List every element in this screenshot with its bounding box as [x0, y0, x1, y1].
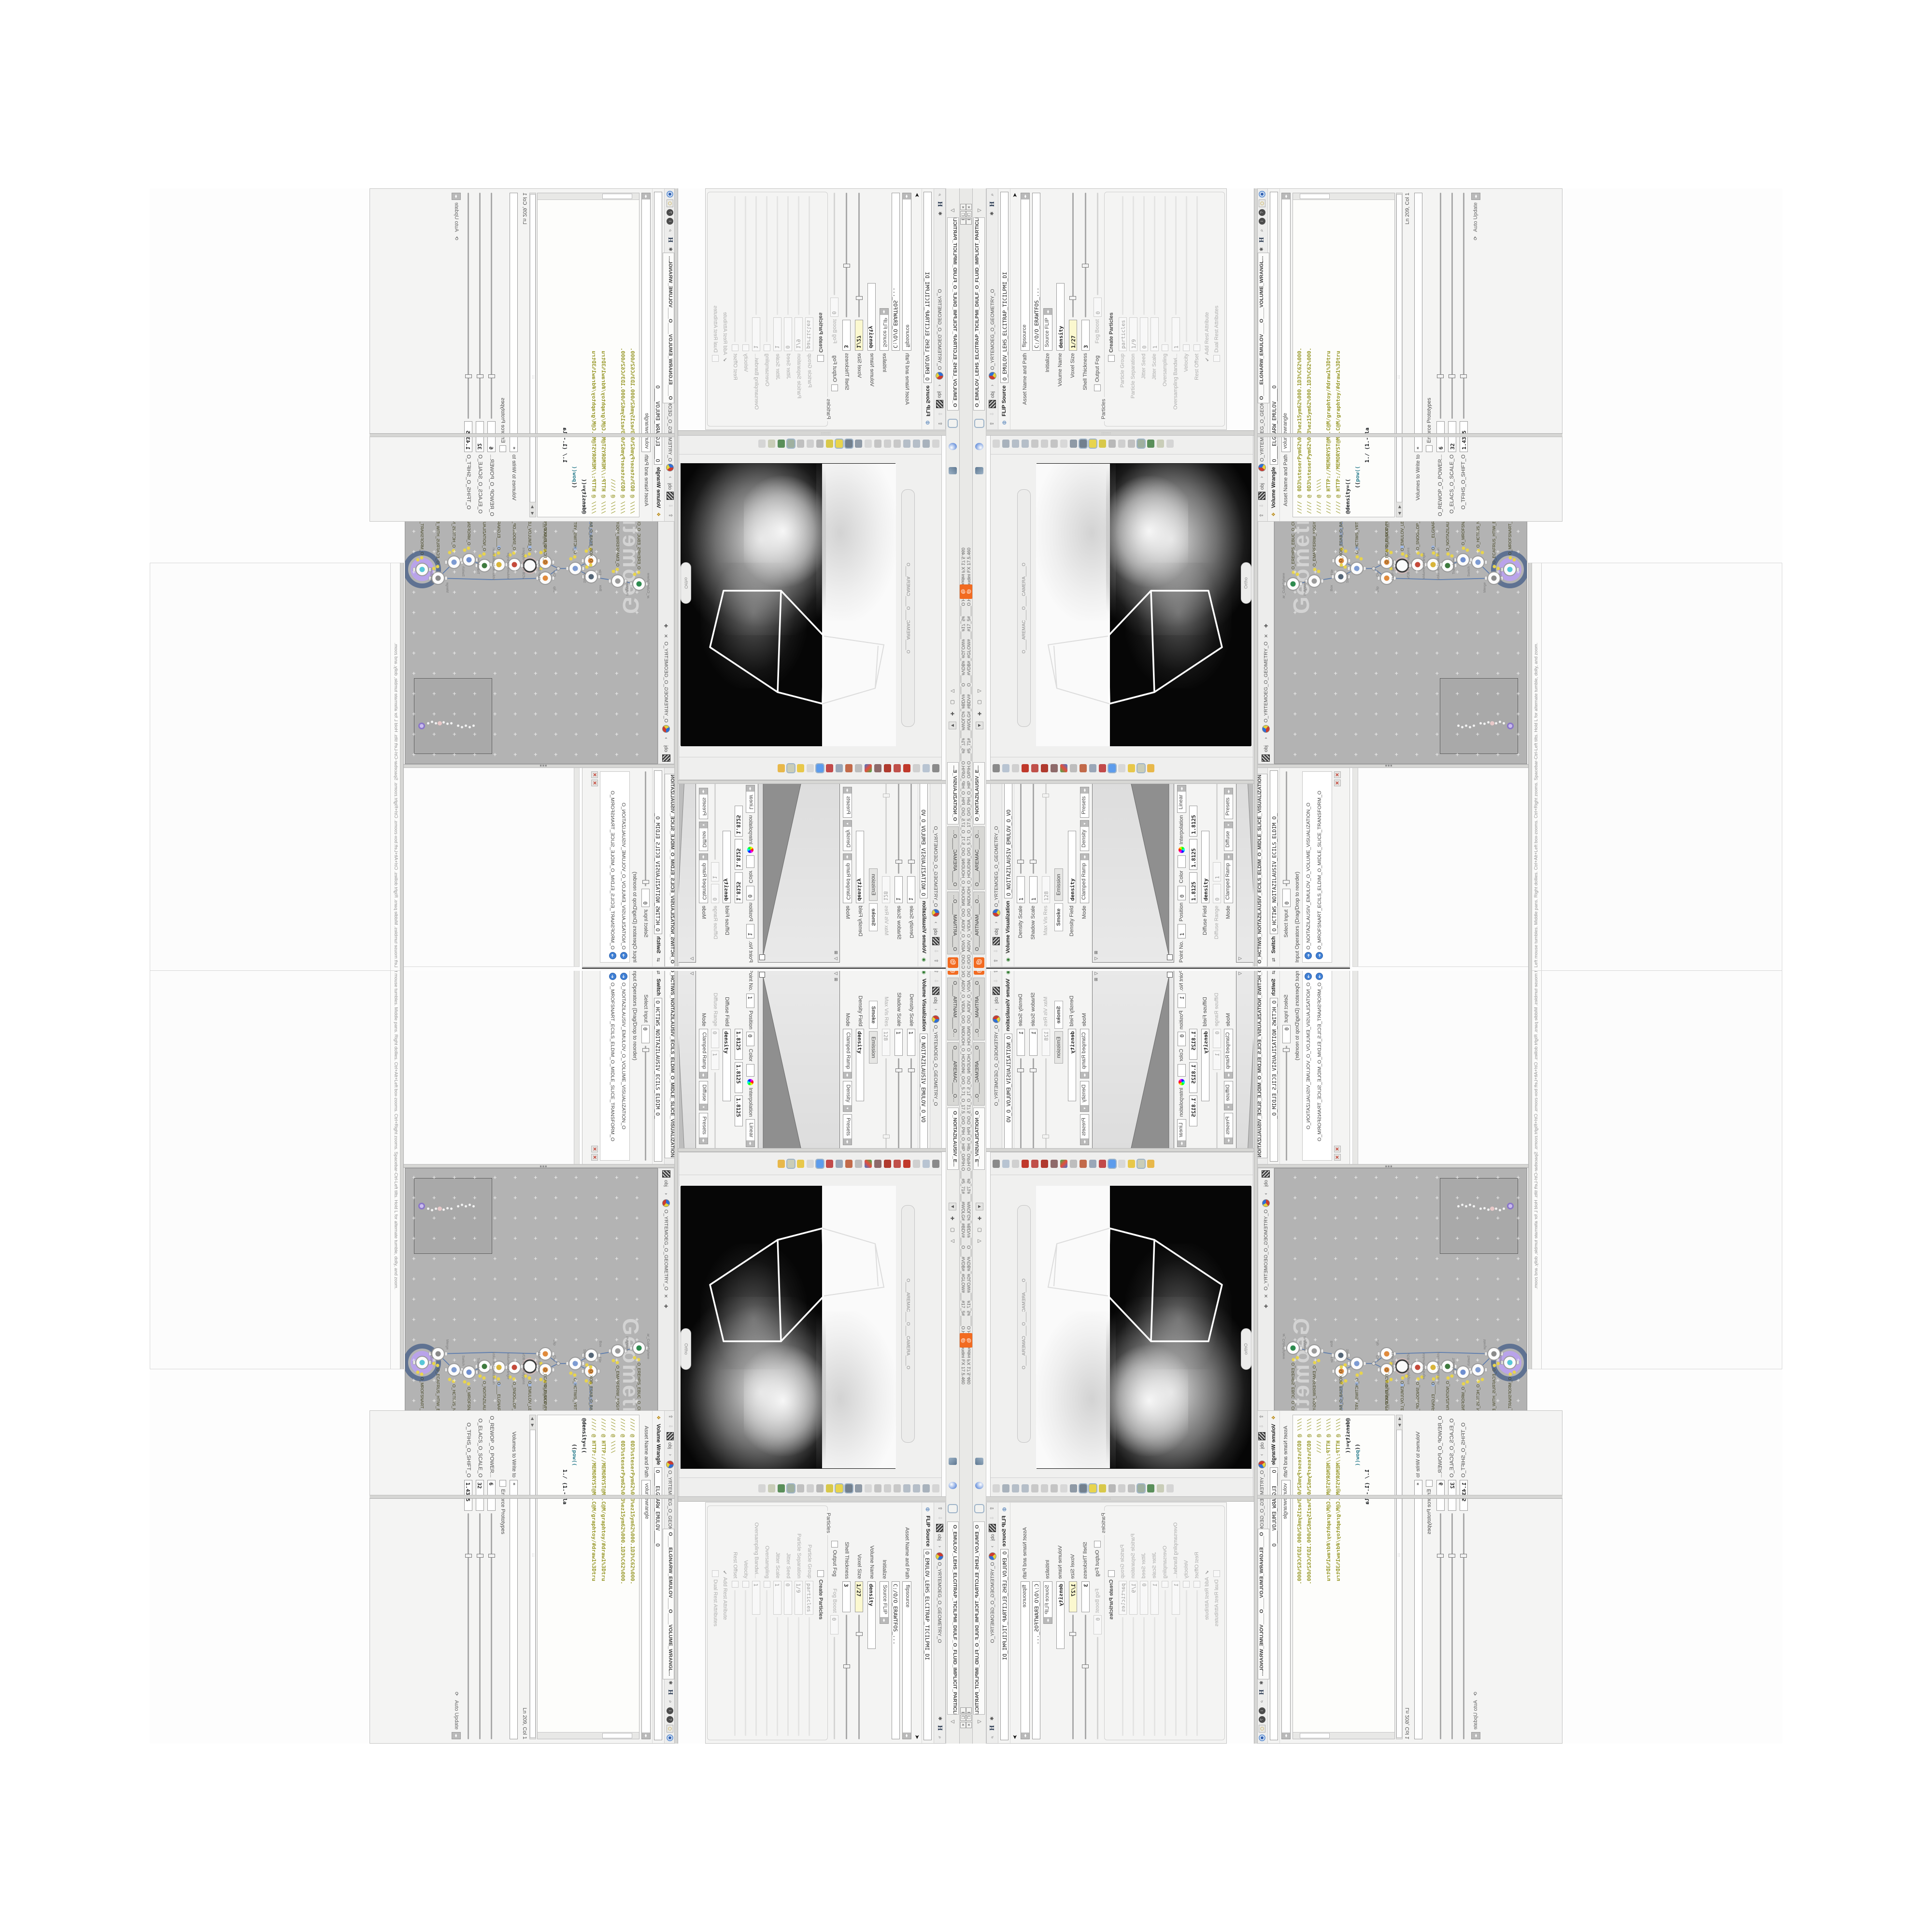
diffuse-presets-combo[interactable]: Presets◂▸ — [1224, 788, 1233, 819]
enforce-prototypes-checkbox[interactable] — [1426, 1480, 1433, 1487]
pane-maximize-icon[interactable]: ▢ — [949, 698, 956, 706]
auto-update-button[interactable]: Auto Update — [454, 1700, 459, 1730]
slider-handle[interactable] — [1449, 374, 1455, 378]
switch-name-field[interactable]: O_HCTIWS_NOITAZILAUSIV_ECILS_ELDIM_O_ — [654, 998, 663, 1162]
ramp-value-field[interactable]: 1.8125 — [1189, 1062, 1197, 1093]
search-icon[interactable]: ⌕ — [989, 191, 996, 199]
flip-grey-slider[interactable] — [735, 196, 736, 342]
sphere-icon[interactable] — [975, 443, 983, 450]
presets-combo[interactable]: Presets◂▸ — [1080, 787, 1089, 818]
light-diamond-icon[interactable] — [787, 765, 795, 773]
flip-grey-field[interactable]: 1 — [753, 1581, 761, 1615]
diffuse-field-field[interactable]: density — [723, 1029, 731, 1101]
breadcrumb-context[interactable]: obj — [990, 1534, 995, 1541]
select-input-slider[interactable] — [645, 1046, 647, 1161]
wand-icon[interactable] — [1041, 440, 1048, 448]
dot-icon[interactable] — [865, 1484, 872, 1492]
fog-boost-field[interactable]: 0 — [1094, 298, 1102, 317]
flip-grey-slider[interactable] — [1122, 196, 1123, 315]
mode-target-combo[interactable]: Density▾ — [1080, 1081, 1089, 1112]
flip-grey-checkbox[interactable] — [1162, 344, 1168, 351]
pin-cursor-icon[interactable]: ➤ — [914, 1734, 921, 1739]
interpolation-combo[interactable]: Linear◂▸ — [746, 785, 755, 813]
flip-name-field[interactable]: O_EMULOV_LEHS_ELCITRAP_TICILPMI_DI — [1000, 1549, 1009, 1740]
code-h-scrollbar[interactable]: ◀ ▶ ::::: — [529, 193, 536, 517]
breadcrumb-path[interactable]: O_YRTEMOEG_O_GEOMETRY_O — [1263, 1209, 1269, 1291]
operator-list-item[interactable]: ➜O_MROFSNART_ECILS_ELDIM_O_MIDLE_SLICE_T… — [1314, 772, 1325, 962]
position-field[interactable]: 0 — [747, 1032, 755, 1046]
enforce-prototypes-checkbox[interactable] — [1426, 445, 1433, 452]
wand-icon[interactable] — [884, 440, 891, 448]
density-scale-field[interactable]: 1 — [1017, 876, 1025, 903]
wrangle-slider[interactable] — [1463, 193, 1464, 419]
breadcrumb-context[interactable]: obj — [937, 391, 943, 398]
remove-operator-button[interactable]: ✕ — [591, 771, 598, 778]
reorder-arrow-icon[interactable]: ➜ — [620, 973, 627, 980]
breadcrumb-path[interactable]: O_YRTEMOEG_O_GEOMETRY_O — [937, 1562, 943, 1713]
mode-target-combo[interactable]: Density▾ — [843, 820, 852, 851]
scroll-left-icon[interactable]: ◄ — [949, 722, 956, 729]
flip-path-field[interactable]: C:/O/O_ERAWTFOS_... — [892, 193, 900, 351]
render-flag-icon[interactable] — [1262, 1170, 1270, 1178]
ramp-value-field[interactable]: 1.8125 — [735, 872, 743, 903]
pane-splitter[interactable]: ■■■ — [403, 764, 676, 768]
density-field-field[interactable]: density — [1068, 1029, 1076, 1101]
pane-splitter[interactable]: ::::::: — [676, 1496, 966, 1502]
asset-name-combo[interactable]: volumewrangle◂▸ — [642, 193, 651, 452]
wrangle-slider[interactable] — [480, 1513, 481, 1739]
reorder-arrow-icon[interactable]: ➜ — [1316, 952, 1323, 959]
pane-splitter[interactable] — [966, 780, 1256, 784]
bulb-icon[interactable] — [1099, 440, 1106, 448]
tab-pane-0[interactable]: O____ARTNAM____O... — [973, 978, 985, 1040]
collapse-icon[interactable]: ◁ — [976, 207, 983, 214]
flip-grey-field[interactable]: 1/9 — [1129, 317, 1137, 351]
separator[interactable] — [1012, 765, 1019, 773]
lamp-icon[interactable] — [1108, 440, 1116, 448]
create-particles-checkbox[interactable] — [817, 355, 824, 362]
ortho-pill[interactable]: Ortho — [681, 1328, 691, 1370]
render-flag-icon[interactable] — [1258, 492, 1265, 500]
shell-thickness-slider[interactable] — [1085, 1615, 1086, 1739]
pane-scrollbar[interactable] — [1353, 767, 1358, 966]
diffuse-target-combo[interactable]: Diffuse▾ — [699, 822, 709, 851]
diamond-icon[interactable] — [768, 440, 775, 448]
slider-handle[interactable] — [1460, 1554, 1467, 1558]
reorder-arrow-icon[interactable]: ➜ — [1316, 973, 1323, 980]
remove-operator-button[interactable]: ✕ — [1334, 780, 1341, 786]
code-h-scrollbar[interactable]: ◀ ▶ ::::: — [1396, 1415, 1403, 1739]
scale-handle-icon[interactable] — [826, 1160, 833, 1168]
light-cone-icon[interactable] — [1147, 765, 1154, 773]
flip-grey-slider[interactable] — [1154, 1617, 1155, 1736]
window-minimize-button[interactable]: ▁ — [966, 218, 972, 225]
reorder-arrow-icon[interactable]: ➜ — [609, 952, 616, 959]
wrangle-slider[interactable] — [491, 193, 493, 419]
cube-icon[interactable] — [975, 467, 983, 474]
nav-up-icon[interactable]: ⇧ — [932, 957, 940, 965]
material-icon[interactable] — [1137, 440, 1145, 448]
remove-operator-button[interactable]: ✕ — [1334, 1154, 1341, 1161]
wrangle-name-field[interactable]: O____ELGNARW_EMULOV____O — [1270, 1467, 1278, 1740]
smooth-shaded-icon[interactable] — [1080, 1484, 1087, 1492]
wand-icon[interactable] — [1041, 1484, 1048, 1492]
diffuse-presets-combo[interactable]: Presets◂▸ — [699, 1113, 709, 1144]
fog-boost-field[interactable]: 0 — [831, 298, 839, 317]
nav-down-icon[interactable]: ⇩ — [993, 947, 1000, 955]
scroll-right-icon[interactable]: ▶ — [1397, 1422, 1402, 1429]
point-no-field[interactable]: 1 — [747, 994, 755, 1008]
tab-pane-0[interactable]: O____ARTNAM____O... — [947, 978, 959, 1040]
pointer-icon[interactable] — [1118, 765, 1125, 773]
flip-grey-slider[interactable] — [809, 1617, 810, 1736]
collapse-icon[interactable]: ◁ — [976, 687, 983, 695]
scroll-right-icon[interactable]: ▶ — [531, 1422, 535, 1429]
arrow-left-icon[interactable] — [993, 1484, 1000, 1492]
cube-add-icon[interactable] — [913, 1484, 920, 1492]
ramp-value-field[interactable]: 1.8125 — [735, 1029, 743, 1060]
pane-splitter[interactable] — [400, 961, 404, 1369]
camera-selector-pill[interactable]: O____AREMAC____O____CAMERA____O — [901, 489, 915, 727]
create-particles-checkbox[interactable] — [1108, 355, 1115, 362]
cube-remove-icon[interactable] — [1022, 1484, 1029, 1492]
window-close-button[interactable]: ✕ — [966, 1722, 972, 1728]
grid-snap-icon[interactable] — [874, 1160, 881, 1168]
arrow-right-icon[interactable] — [1166, 1484, 1174, 1492]
td-mode-icon[interactable] — [1108, 765, 1116, 773]
pane-split-icon[interactable]: ✚ — [976, 710, 983, 717]
add-icon[interactable]: ✚ — [1262, 621, 1270, 629]
presets-combo[interactable]: Presets◂▸ — [1080, 1114, 1089, 1145]
nav-down-icon[interactable]: ⇩ — [936, 410, 944, 418]
volumes-field[interactable]: * — [510, 1480, 518, 1739]
initialize-combo[interactable]: Source FLIP◂▸ — [880, 308, 889, 351]
flip-grey-field[interactable]: 0 — [1140, 1581, 1148, 1615]
tab-smoke[interactable]: Smoke — [869, 1001, 878, 1029]
axis-gnomon-icon[interactable] — [1060, 765, 1067, 773]
ramp-flip-icon[interactable]: ▽ — [833, 957, 838, 960]
perspective-icon[interactable] — [1002, 1484, 1009, 1492]
reorder-arrow-icon[interactable]: ➜ — [609, 973, 616, 980]
color-swatch[interactable] — [1178, 1064, 1186, 1077]
shell-thickness-field[interactable]: 3 — [1081, 1581, 1090, 1612]
tab-wrangle-pane[interactable]: O____ELGNARW_EMULOV____O____VOLUME_WRANG… — [1258, 1529, 1269, 1679]
flip-grey-field[interactable]: 1 — [753, 317, 761, 351]
vex-code-editor[interactable]: //// @ 0D3%steserPym62%0D3%ez15ym62%000.… — [537, 193, 639, 517]
breadcrumb-path[interactable]: O_YRTEMOEG_O_GEOMETRY_O — [663, 1209, 669, 1291]
nav-up-icon[interactable]: ⇧ — [989, 420, 996, 427]
pane-split-icon[interactable]: ✚ — [949, 710, 956, 717]
material-icon[interactable] — [787, 1484, 795, 1492]
wrangle-name-field[interactable]: O____ELGNARW_EMULOV____O — [1270, 192, 1278, 465]
reorder-arrow-icon[interactable]: ➜ — [1305, 952, 1312, 959]
pane-splitter[interactable] — [1256, 1495, 1563, 1499]
move-handle-icon[interactable] — [1089, 1160, 1096, 1168]
smooth-shaded-icon[interactable] — [845, 440, 852, 448]
tab-pane-1[interactable]: O____AREMAC____O... — [973, 1042, 985, 1106]
collapse-icon[interactable]: ◁ — [976, 1237, 983, 1245]
breadcrumb-path[interactable]: O_YRTEMOEG_O_GEOMETRY_O — [990, 219, 995, 370]
ramp-flip-icon[interactable]: ▽ — [1237, 972, 1243, 975]
flip-grey-slider[interactable] — [1165, 1590, 1166, 1736]
flip-grey-field[interactable]: 0 — [784, 1581, 793, 1615]
voxel-size-field[interactable]: 1/27 — [1069, 320, 1077, 351]
smooth-shaded-icon[interactable] — [1080, 440, 1087, 448]
light-box-icon[interactable] — [797, 765, 804, 773]
select-input-field[interactable]: 0 — [1282, 889, 1291, 907]
light-cone-icon[interactable] — [778, 1160, 785, 1168]
scissors-icon[interactable] — [855, 1160, 862, 1168]
rotate-handle-icon[interactable] — [845, 1160, 852, 1168]
flip-grey-field[interactable]: 1 — [1151, 1581, 1159, 1615]
max-vis-res-field[interactable]: 128 — [1042, 1029, 1050, 1056]
add-icon[interactable]: ✚ — [1262, 1303, 1270, 1311]
flip-asset-combo[interactable]: flipsource◂▸ — [1021, 193, 1030, 351]
volumes-field[interactable]: * — [510, 193, 518, 452]
pane-splitter[interactable] — [1254, 188, 1258, 967]
slider-handle[interactable] — [477, 374, 484, 378]
scale-handle-icon[interactable] — [826, 765, 833, 773]
tab-pane-0[interactable]: O____ARTNAM____O... — [947, 892, 959, 954]
light-diamond-icon[interactable] — [1137, 1160, 1145, 1168]
diffuse-mode-combo[interactable]: Clamped Ramp◂▸ — [1224, 853, 1233, 903]
volume-name-field[interactable]: density — [868, 1581, 876, 1649]
render-flag-icon[interactable] — [667, 492, 674, 500]
ortho-pill[interactable]: Ortho — [1241, 562, 1251, 604]
search-icon[interactable]: ⌕ — [936, 1733, 944, 1741]
scroll-left-icon[interactable]: ◄ — [949, 1203, 956, 1210]
flip-grey-slider[interactable] — [798, 1617, 800, 1736]
nav-down-icon[interactable]: ⇩ — [667, 1422, 674, 1430]
refresh-icon[interactable]: ⟳ — [453, 1690, 460, 1698]
color-swatch[interactable] — [747, 1064, 755, 1077]
rotate-handle-icon[interactable] — [1080, 765, 1087, 773]
pane-splitter[interactable] — [1528, 961, 1532, 1369]
flip-path-field[interactable]: C:/O/O_ERAWTFOS_... — [1032, 193, 1040, 351]
wand-icon[interactable] — [884, 1484, 891, 1492]
create-particles-checkbox[interactable] — [1108, 1570, 1115, 1577]
scroll-left-icon[interactable]: ◀ — [1397, 510, 1402, 517]
magnet-snap-icon[interactable] — [1022, 765, 1029, 773]
nav-up-icon[interactable]: ⇧ — [667, 511, 674, 519]
flip-name-field[interactable]: O_EMULOV_LEHS_ELCITRAP_TICILPMI_DI — [1000, 192, 1009, 383]
shell-thickness-slider[interactable] — [846, 193, 848, 317]
move-handle-icon[interactable] — [836, 765, 843, 773]
tab-pane-1[interactable]: O____AREMAC____O... — [947, 1042, 959, 1106]
ghost-icon[interactable] — [1118, 440, 1125, 448]
light-box-icon[interactable] — [1128, 765, 1135, 773]
wrangle-slider[interactable] — [1440, 193, 1441, 419]
nav-up-icon[interactable]: ⇧ — [936, 420, 944, 427]
flip-path-field[interactable]: C:/O/O_ERAWTFOS_... — [1032, 1581, 1040, 1739]
voxel-size-slider[interactable] — [1072, 193, 1074, 317]
ramp-value-field[interactable]: 1.8125 — [735, 1062, 743, 1093]
cube-icon[interactable] — [975, 1458, 983, 1465]
shaded-icon[interactable] — [1070, 1484, 1077, 1492]
probe-icon[interactable] — [1051, 440, 1058, 448]
magnet-multi-icon[interactable] — [1041, 1160, 1048, 1168]
pointer-icon[interactable] — [1118, 1160, 1125, 1168]
scroll-left-icon[interactable]: ◄ — [976, 722, 983, 729]
flip-grey-slider[interactable] — [788, 1617, 789, 1736]
camera-view-icon[interactable] — [993, 1160, 1000, 1168]
pane-scrollbar[interactable] — [1353, 966, 1358, 1165]
pane-splitter[interactable] — [400, 563, 404, 971]
create-particles-checkbox[interactable] — [817, 1570, 824, 1577]
magnet-snap-icon[interactable] — [1022, 1160, 1029, 1168]
wrangle-slider[interactable] — [1440, 1513, 1441, 1739]
update-mode-combo[interactable]: ◂▸ — [452, 1732, 461, 1739]
light-box-icon[interactable] — [797, 1160, 804, 1168]
flip-grey-slider[interactable] — [1133, 1617, 1134, 1736]
view-plane-icon[interactable] — [923, 1160, 930, 1168]
light-cone-icon[interactable] — [778, 765, 785, 773]
auto-update-button[interactable]: Auto Update — [1473, 1700, 1478, 1730]
fog-boost-slider[interactable] — [1097, 193, 1098, 295]
magnet-point-icon[interactable] — [894, 1160, 901, 1168]
diffuse-target-combo[interactable]: Diffuse▾ — [699, 1081, 709, 1110]
sphere-icon[interactable] — [975, 1482, 983, 1489]
breadcrumb-path[interactable]: O_YRTEMOEG_O_GEOMETRY_O — [937, 219, 943, 370]
nav-up-icon[interactable]: ⇧ — [1258, 1413, 1266, 1421]
shell-thickness-slider[interactable] — [1085, 193, 1086, 317]
flip-grey-checkbox[interactable] — [1183, 344, 1190, 351]
voxel-size-field[interactable]: 1/27 — [1069, 1581, 1077, 1612]
arrow-right-icon[interactable] — [758, 440, 766, 448]
output-fog-checkbox[interactable] — [831, 384, 838, 391]
grid-snap-icon[interactable] — [1051, 1160, 1058, 1168]
ortho-pill[interactable]: Ortho — [681, 562, 691, 604]
separator[interactable] — [913, 1160, 920, 1168]
diffuse-range-max[interactable]: 1 — [1213, 1051, 1221, 1070]
update-mode-combo[interactable]: ◂▸ — [452, 193, 461, 200]
interpolation-combo[interactable]: Linear◂▸ — [746, 1119, 755, 1147]
camera-view-icon[interactable] — [932, 765, 939, 773]
visibility-icon[interactable] — [797, 440, 804, 448]
wrangle-slider[interactable] — [468, 1513, 469, 1739]
volumes-field[interactable]: * — [1414, 193, 1422, 452]
flip-asset-combo[interactable]: flipsource◂▸ — [903, 1581, 912, 1739]
light-box-icon[interactable] — [1128, 1160, 1135, 1168]
mode-combo[interactable]: Clamped Ramp◂▸ — [843, 1029, 852, 1079]
flip-grey-field[interactable]: 1 — [774, 317, 782, 351]
pane-split-icon[interactable]: ✚ — [976, 1215, 983, 1222]
select-input-field[interactable]: 0 — [1282, 1025, 1291, 1043]
diffuse-field-field[interactable]: density — [1201, 831, 1209, 903]
flip-grey-field[interactable]: particles — [1119, 317, 1127, 351]
mode-target-combo[interactable]: Density▾ — [843, 1081, 852, 1112]
ramp-value-field[interactable]: 1.8125 — [735, 1095, 743, 1126]
flip-path-field[interactable]: C:/O/O_ERAWTFOS_... — [892, 1581, 900, 1739]
grid-snap-icon[interactable] — [1051, 765, 1058, 773]
shaded-icon[interactable] — [1070, 440, 1077, 448]
ramp-point-handle[interactable] — [1167, 954, 1173, 960]
tab-flip-pane[interactable]: O_EMULOV_LEHS_ELCITRAP_TICILPMI_DIULF_O_… — [973, 217, 985, 411]
remove-operator-button[interactable]: ✕ — [1334, 771, 1341, 778]
density-scale-field[interactable]: 1 — [908, 1029, 916, 1056]
flip-grey-checkbox[interactable] — [1183, 1581, 1190, 1588]
fog-boost-slider[interactable] — [834, 1637, 836, 1739]
render-flag-icon[interactable] — [1262, 754, 1270, 762]
lamp-icon[interactable] — [816, 440, 824, 448]
remove-operator-button[interactable]: ✕ — [591, 780, 598, 786]
material-icon[interactable] — [1137, 1484, 1145, 1492]
pane-splitter[interactable] — [674, 965, 678, 1744]
breadcrumb-context[interactable]: obj — [1259, 483, 1265, 490]
arrow-left-icon[interactable] — [993, 440, 1000, 448]
flip-grey-field[interactable]: 1 — [1172, 1581, 1180, 1615]
shell-thickness-field[interactable]: 3 — [1081, 320, 1090, 351]
nav-up-icon[interactable]: ⇧ — [993, 957, 1000, 965]
flip-grey-field[interactable]: 1 — [774, 1581, 782, 1615]
headlight-icon[interactable] — [836, 440, 843, 448]
breadcrumb-context[interactable]: obj — [668, 1442, 673, 1449]
nav-down-icon[interactable]: ⇩ — [993, 977, 1000, 985]
magnet-snap-icon[interactable] — [903, 765, 910, 773]
voxel-size-field[interactable]: 1/27 — [855, 1581, 864, 1612]
nav-down-icon[interactable]: ⇩ — [932, 947, 940, 955]
wrangle-name-field[interactable]: O____ELGNARW_EMULOV____O — [654, 1467, 663, 1740]
select-input-slider[interactable] — [645, 771, 647, 886]
shadow-scale-field[interactable]: 1 — [895, 1029, 903, 1056]
flip-asset-combo[interactable]: flipsource◂▸ — [903, 193, 912, 351]
flip-grey-checkbox[interactable] — [1193, 344, 1200, 351]
search-icon[interactable]: ⌕ — [989, 1733, 996, 1741]
tab-emission[interactable]: Emission — [1054, 868, 1063, 901]
position-field[interactable]: 0 — [1178, 1032, 1186, 1046]
collapse-icon[interactable]: ◁ — [949, 1237, 956, 1245]
pane-maximize-icon[interactable]: ▢ — [976, 698, 983, 706]
pane-splitter[interactable] — [674, 188, 678, 967]
flip-grey-slider[interactable] — [767, 196, 768, 342]
display-toggle-icon[interactable] — [949, 420, 957, 427]
ramp-point-handle[interactable] — [759, 972, 765, 978]
dot-icon[interactable] — [1060, 1484, 1067, 1492]
max-vis-res-field[interactable]: 128 — [882, 1029, 891, 1056]
close-icon[interactable]: ✕ — [662, 1293, 670, 1301]
display-toggle-icon[interactable] — [975, 420, 983, 427]
point-no-field[interactable]: 1 — [1178, 924, 1186, 938]
flip-grey-field[interactable]: 1 — [1151, 317, 1159, 351]
scissors-icon[interactable] — [1070, 765, 1077, 773]
cube-remove-icon[interactable] — [1022, 440, 1029, 448]
window-restore-button[interactable]: ❐ — [960, 211, 966, 217]
flip-grey-slider[interactable] — [1175, 1617, 1177, 1736]
ramp-flip-icon[interactable]: ▽ — [1237, 957, 1243, 960]
voxel-size-slider[interactable] — [859, 193, 860, 317]
pane-splitter[interactable]: ::::::: — [966, 1496, 1256, 1502]
shell-thickness-slider[interactable] — [846, 1615, 848, 1739]
scroll-left-icon[interactable]: ◀ — [1397, 1415, 1402, 1422]
tab-smoke[interactable]: Smoke — [1054, 1001, 1063, 1029]
breadcrumb-path[interactable]: O_YRTEMOEG_O_GEOMETRY_O — [663, 641, 669, 723]
dual-rest-checkbox[interactable] — [1213, 1570, 1220, 1577]
nav-down-icon[interactable]: ⇩ — [667, 502, 674, 510]
asset-name-combo[interactable]: volumewrangle◂▸ — [1281, 193, 1291, 452]
viewport-render[interactable] — [681, 1186, 896, 1468]
arrow-right-icon[interactable] — [758, 1484, 766, 1492]
flip-grey-slider[interactable] — [745, 196, 747, 342]
vdb-icon[interactable] — [778, 1484, 785, 1492]
volume-name-field[interactable]: density — [1056, 1581, 1065, 1649]
diffuse-range-min[interactable]: 0 — [711, 1029, 720, 1048]
flip-grey-slider[interactable] — [798, 196, 800, 315]
operator-list-item[interactable]: ➜O_NOITAZILAUSIV_EMULOV_O_VOLUME_VISUALI… — [618, 970, 629, 1160]
flip-grey-checkbox[interactable] — [764, 1581, 770, 1588]
pane-splitter[interactable]: ■■■ — [1256, 1164, 1529, 1168]
camera-view-icon[interactable] — [993, 765, 1000, 773]
pane-split-icon[interactable]: ✚ — [949, 1215, 956, 1222]
